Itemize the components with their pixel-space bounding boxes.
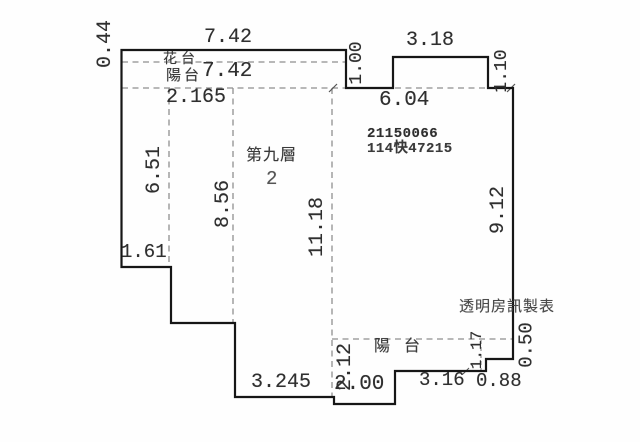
dim-inner-width-left: 2.165 [166, 88, 226, 108]
dim-right-step-depth-1: 1.17 [469, 331, 485, 369]
dim-left-height: 6.51 [145, 146, 165, 194]
dim-right-step-depth-2: 0.50 [518, 322, 537, 368]
dim-mid-right-height: 11.18 [308, 197, 328, 257]
dim-notch-depth: 1.00 [348, 41, 366, 84]
balcony-bottom-label: 陽台 [374, 339, 434, 355]
dim-balcony-top-width: 7.42 [202, 61, 252, 82]
dim-bottom-width-4: 0.88 [476, 372, 522, 391]
dim-right-height: 9.12 [489, 186, 509, 234]
dim-mid-height: 8.56 [214, 180, 234, 228]
dim-balcony-bottom-depth: 2.12 [336, 343, 356, 391]
dim-flower-bed-depth: 0.44 [96, 20, 116, 68]
unit-number: 2 [266, 170, 277, 189]
dim-left-step-width: 1.61 [121, 243, 167, 262]
dim-top-width: 7.42 [204, 28, 252, 48]
dim-bottom-width-1: 3.245 [251, 373, 311, 393]
floor-label: 第九層 [246, 148, 297, 164]
registration-number-2: 114快47215 [367, 142, 453, 156]
registration-number-1: 21150066 [367, 127, 438, 141]
dim-upper-box-width: 3.18 [406, 31, 454, 51]
dim-bottom-width-3: 3.16 [419, 371, 465, 390]
flower-bed-label: 花台 [163, 51, 199, 65]
dim-upper-box-depth: 1.10 [493, 49, 511, 92]
balcony-top-label: 陽台 [166, 68, 202, 83]
dim-inner-top-width: 6.04 [379, 90, 429, 111]
floor-plan-canvas: 7.42 3.18 7.42 2.165 6.04 1.61 3.245 2.0… [0, 0, 640, 442]
watermark-text: 透明房訊製表 [459, 299, 555, 314]
